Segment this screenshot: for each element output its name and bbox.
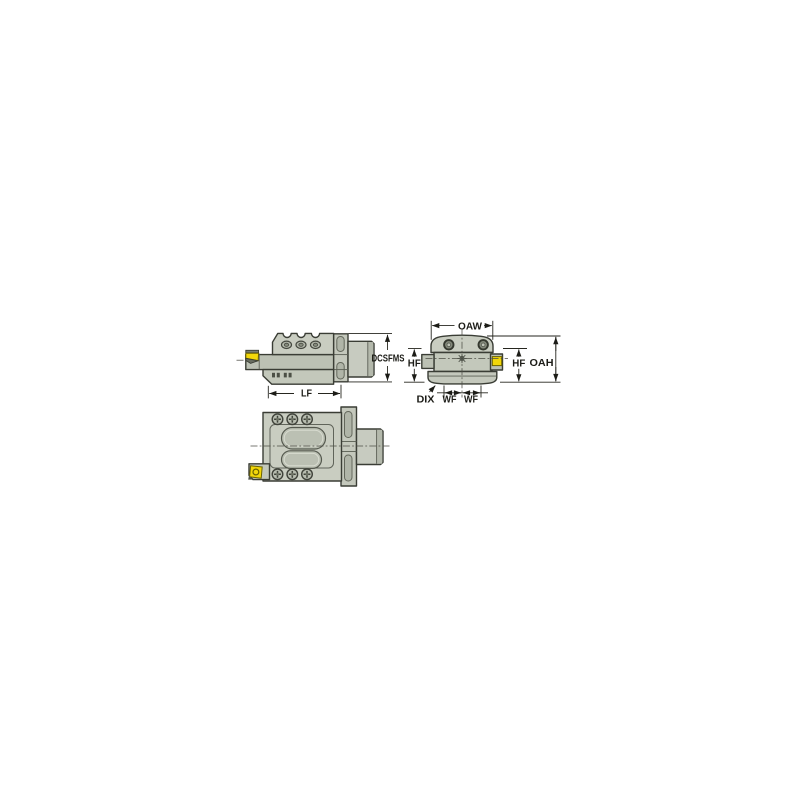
cutting-insert: [492, 357, 501, 366]
clamp-screw-icon: [287, 469, 298, 480]
flange-groove: [345, 412, 353, 438]
insert-clamp: [246, 350, 259, 353]
dimension-label-dix: DIX: [417, 394, 435, 405]
clamp-screw-icon: [287, 414, 298, 425]
dimension-lf: LF: [268, 385, 341, 400]
torx-screw-icon: [311, 341, 321, 348]
dimension-label-lf: LF: [301, 389, 312, 400]
vdi-serration-icon: [457, 354, 466, 363]
base-flange: [428, 372, 497, 384]
dimension-label-oaw: OAW: [458, 321, 483, 332]
dimension-hf-right: HF: [503, 349, 527, 382]
technical-drawing: DCSFMS LF: [0, 0, 800, 800]
flange-groove: [337, 363, 344, 380]
tool-body: [434, 353, 492, 372]
leader-arrow: [430, 386, 436, 392]
dimension-label-oah: OAH: [530, 358, 554, 369]
bar-end: [422, 355, 434, 369]
dimension-dix: DIX: [417, 386, 436, 406]
dimension-label-wf-right: WF: [464, 394, 478, 405]
screw-head-icon: [444, 340, 453, 349]
dimension-wf: WF WF: [437, 386, 488, 406]
side-view: DCSFMS LF: [237, 333, 405, 399]
flange-groove: [345, 455, 353, 481]
shank-shading: [377, 430, 383, 464]
cutting-insert: [250, 466, 263, 478]
page: DCSFMS LF: [0, 0, 800, 800]
clamp-screw-icon: [272, 414, 283, 425]
torx-screw-icon: [282, 341, 292, 348]
clamp-screw-icon: [302, 414, 313, 425]
flange-groove: [337, 337, 344, 352]
clamp-screw-icon: [272, 469, 283, 480]
dimension-label-dcsfms: DCSFMS: [372, 354, 405, 365]
dimension-label-wf-left: WF: [443, 394, 457, 405]
torx-screw-icon: [296, 341, 306, 348]
screw-head-icon: [479, 340, 488, 349]
pocket: [282, 451, 322, 469]
top-view: [248, 407, 391, 486]
dimension-label-hf-left: HF: [408, 359, 421, 370]
front-view: OAW OAH HF HF: [404, 321, 561, 406]
clamp-screw-icon: [302, 469, 313, 480]
dimension-label-hf-right: HF: [512, 359, 525, 370]
